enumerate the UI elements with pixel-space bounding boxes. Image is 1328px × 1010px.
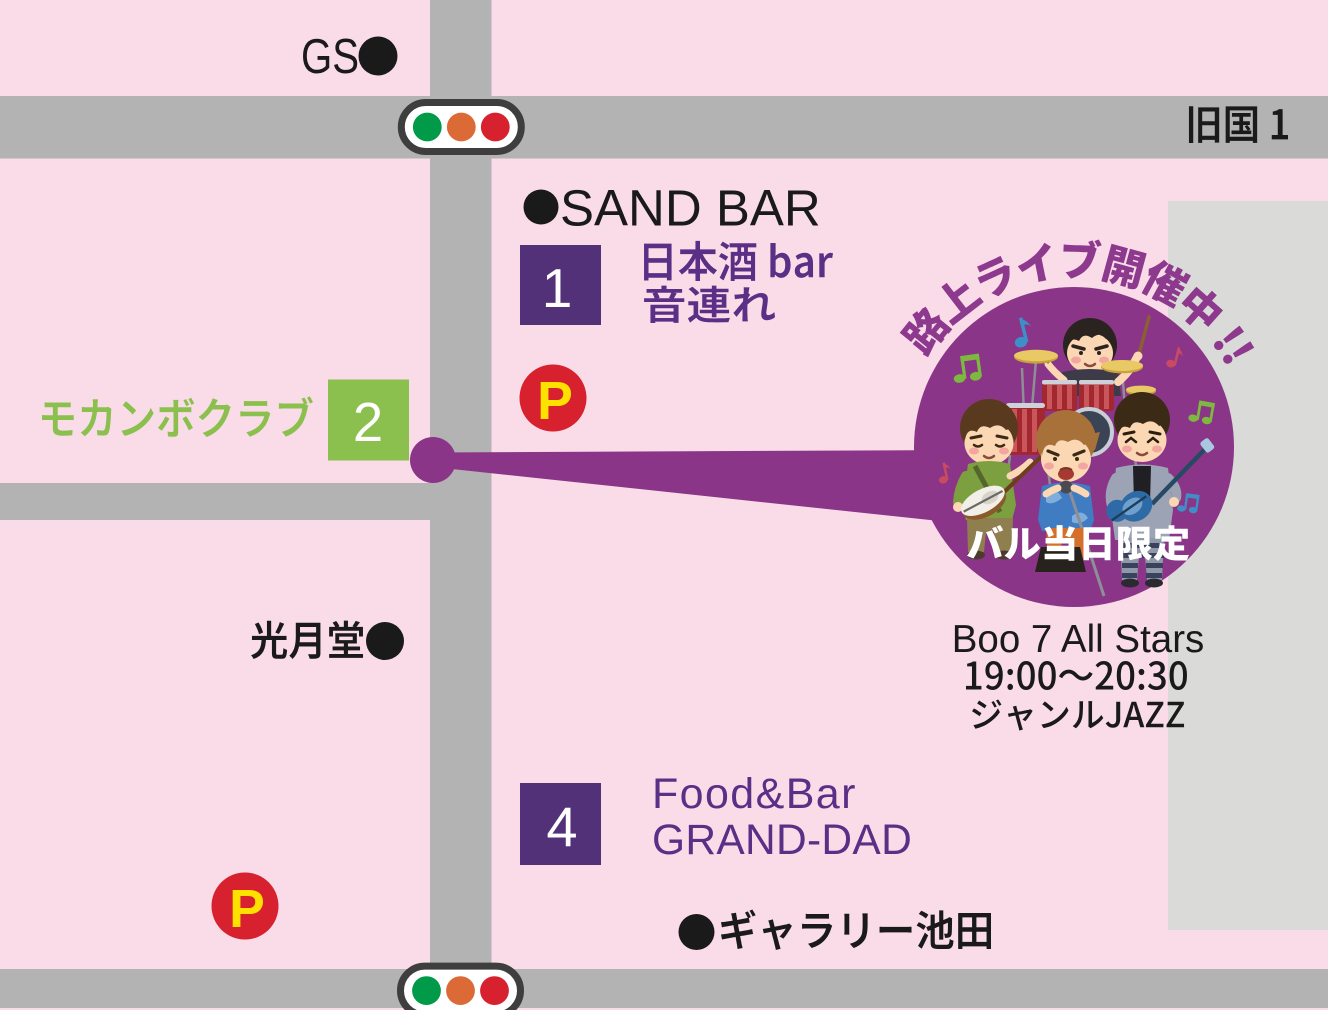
svg-text:GRAND-DAD: GRAND-DAD	[652, 817, 912, 864]
svg-text:Food&Bar: Food&Bar	[652, 770, 857, 818]
svg-text:2: 2	[353, 392, 383, 453]
svg-text:GS: GS	[301, 29, 359, 84]
svg-text:Boo 7 All Stars: Boo 7 All Stars	[952, 618, 1205, 661]
svg-text:P: P	[229, 880, 265, 939]
svg-text:1: 1	[542, 257, 573, 319]
svg-text:4: 4	[546, 795, 577, 858]
svg-text:P: P	[537, 372, 573, 431]
svg-text:SAND BAR: SAND BAR	[560, 180, 821, 237]
